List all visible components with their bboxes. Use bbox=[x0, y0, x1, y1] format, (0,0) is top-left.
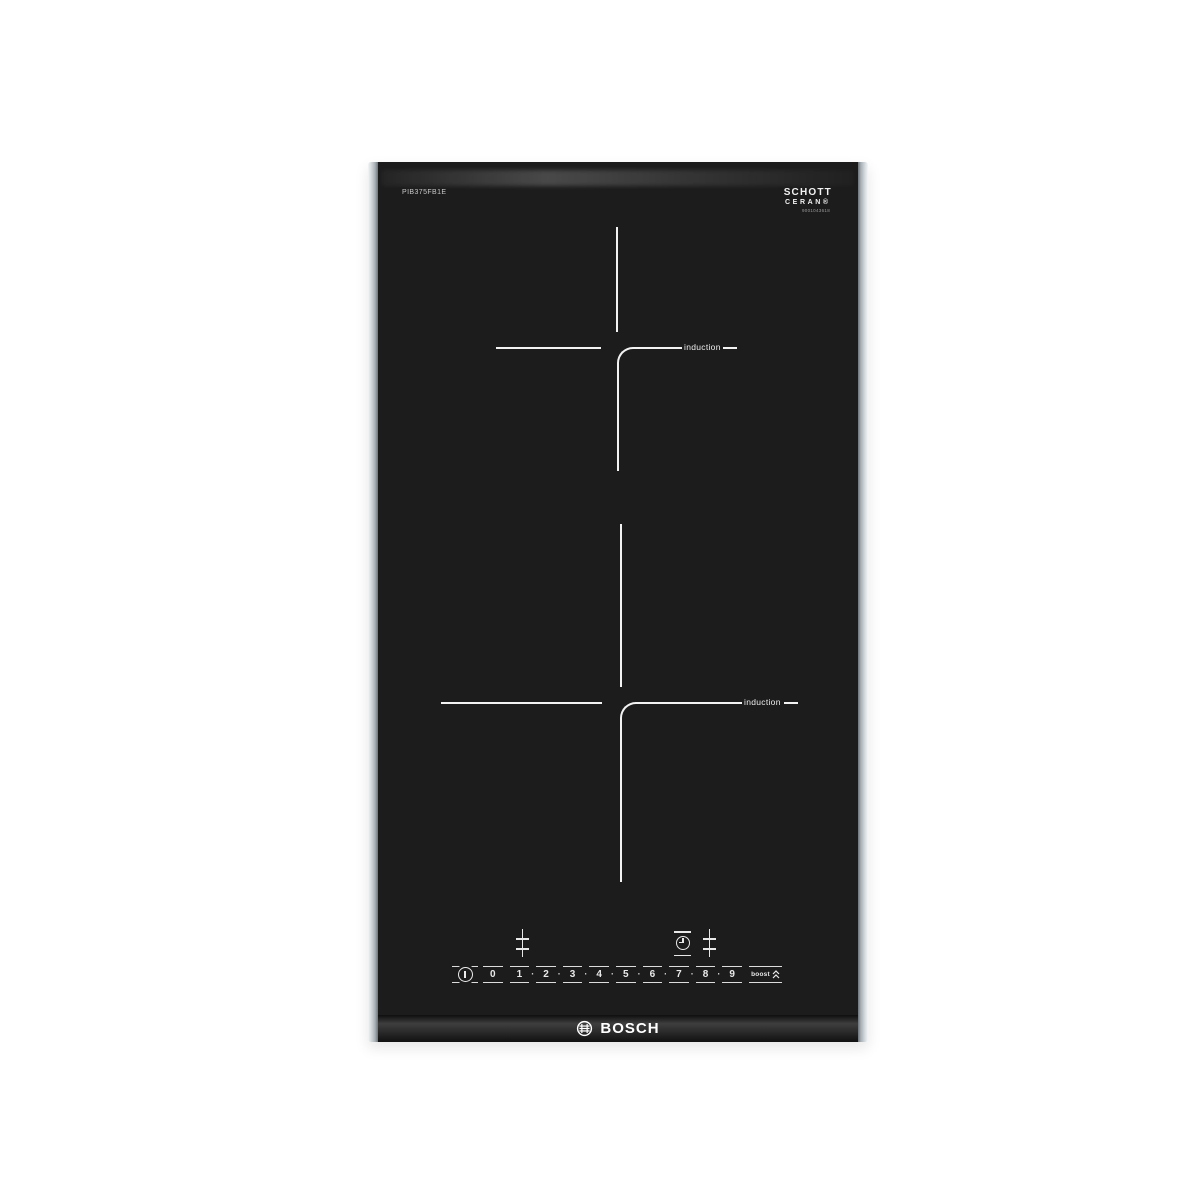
slider-dot: · bbox=[558, 966, 561, 983]
zone-lower-left-line bbox=[441, 702, 602, 704]
induction-hob: PIB375FB1E SCHOTT CERAN® 9001043618 indu… bbox=[368, 162, 868, 1042]
zone-upper-left-line bbox=[496, 347, 601, 349]
slider-icon-bar bbox=[703, 938, 716, 940]
slider-dot: · bbox=[611, 966, 614, 983]
zone-upper-top-line bbox=[616, 227, 618, 332]
zone-lower-induction-label: induction bbox=[744, 697, 781, 707]
power-level-4[interactable]: 4 bbox=[589, 966, 609, 983]
front-bezel: BOSCH bbox=[378, 1015, 858, 1042]
slider-dot: · bbox=[638, 966, 641, 983]
slider-dot: · bbox=[691, 966, 694, 983]
zone-right-level-slider-icon[interactable] bbox=[703, 929, 716, 957]
boost-button[interactable]: boost bbox=[749, 966, 782, 983]
power-button[interactable] bbox=[452, 966, 478, 983]
zone-left-level-slider-icon[interactable] bbox=[516, 929, 529, 957]
slider-gap bbox=[744, 966, 747, 983]
power-level-8[interactable]: 8 bbox=[696, 966, 716, 983]
power-level-slider[interactable]: 01·2·3·4·5·6·7·8·9 boost bbox=[452, 966, 782, 983]
bosch-brand-text: BOSCH bbox=[600, 1020, 659, 1037]
ceran-glass-surface bbox=[378, 162, 858, 1042]
slider-dot: · bbox=[664, 966, 667, 983]
power-level-9[interactable]: 9 bbox=[722, 966, 742, 983]
power-level-1[interactable]: 1 bbox=[510, 966, 530, 983]
power-level-2[interactable]: 2 bbox=[536, 966, 556, 983]
slider-icon-bar bbox=[516, 948, 529, 950]
zone-upper-induction-label: induction bbox=[684, 342, 721, 352]
left-metal-rail bbox=[368, 162, 378, 1042]
timer-top-line bbox=[674, 931, 691, 933]
slider-icon-line bbox=[709, 929, 711, 957]
slider-icon-line bbox=[522, 929, 524, 957]
timer-clock-hand bbox=[679, 942, 683, 943]
power-level-7[interactable]: 7 bbox=[669, 966, 689, 983]
zone-lower-top-line bbox=[620, 524, 622, 687]
timer-icon[interactable] bbox=[673, 931, 692, 956]
boost-label: boost bbox=[751, 971, 770, 978]
slider-icon-bar bbox=[516, 938, 529, 940]
power-level-3[interactable]: 3 bbox=[563, 966, 583, 983]
power-icon bbox=[458, 967, 473, 982]
glass-reflection bbox=[382, 170, 854, 186]
slider-dot: · bbox=[584, 966, 587, 983]
timer-clock-face bbox=[676, 936, 690, 950]
slider-dot: · bbox=[531, 966, 534, 983]
slider-dot: · bbox=[717, 966, 720, 983]
product-photo-stage: PIB375FB1E SCHOTT CERAN® 9001043618 indu… bbox=[0, 0, 1200, 1200]
zone-lower-corner-line bbox=[620, 702, 742, 882]
double-chevron-up-icon bbox=[772, 970, 780, 979]
schott-logo-line1: SCHOTT bbox=[784, 188, 832, 198]
power-level-0[interactable]: 0 bbox=[483, 966, 503, 983]
slider-icon-bar bbox=[703, 948, 716, 950]
schott-logo-line2: CERAN® bbox=[784, 199, 832, 206]
right-metal-rail bbox=[858, 162, 868, 1042]
power-icon-bar bbox=[464, 971, 466, 978]
power-level-6[interactable]: 6 bbox=[643, 966, 663, 983]
zone-upper-right-dash bbox=[723, 347, 737, 349]
slider-dot bbox=[505, 966, 508, 983]
zone-upper-corner-line bbox=[617, 347, 682, 471]
zone-lower-right-dash bbox=[784, 702, 798, 704]
model-number-label: PIB375FB1E bbox=[402, 189, 446, 196]
timer-bottom-line bbox=[674, 955, 691, 957]
schott-ceran-logo: SCHOTT CERAN® bbox=[784, 188, 832, 206]
bosch-logo-icon bbox=[576, 1020, 593, 1037]
glass-code-label: 9001043618 bbox=[802, 208, 830, 213]
power-level-5[interactable]: 5 bbox=[616, 966, 636, 983]
level-cells: 01·2·3·4·5·6·7·8·9 bbox=[481, 966, 744, 983]
